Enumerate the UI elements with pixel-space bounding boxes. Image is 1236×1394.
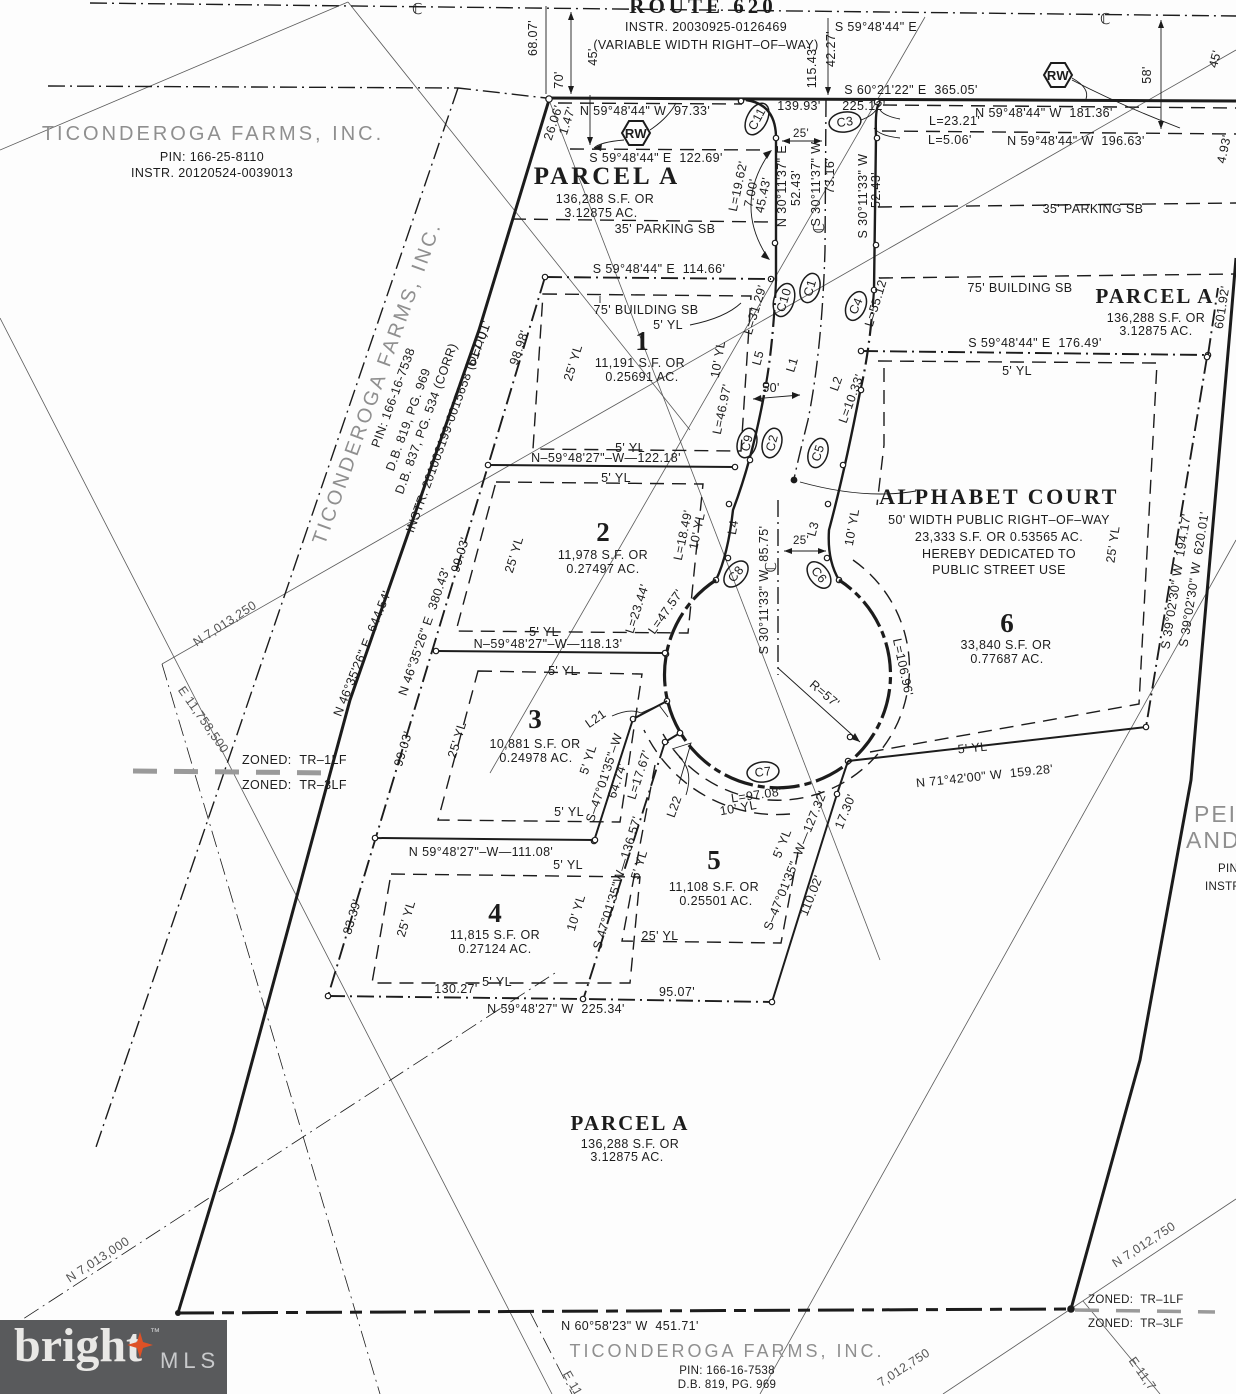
- svg-text:73.16': 73.16': [823, 158, 837, 194]
- svg-text:N 7,013,250: N 7,013,250: [191, 598, 259, 649]
- svg-text:0.25501 AC.: 0.25501 AC.: [679, 894, 752, 908]
- svg-text:11,815 S.F. OR: 11,815 S.F. OR: [450, 928, 540, 942]
- svg-text:L=23.21': L=23.21': [929, 114, 980, 128]
- svg-text:S 30°11'33" W: S 30°11'33" W: [856, 154, 870, 239]
- svg-text:0.77687 AC.: 0.77687 AC.: [970, 652, 1043, 666]
- svg-text:25': 25': [793, 128, 809, 140]
- svg-text:45': 45': [586, 48, 600, 66]
- svg-text:25' YL: 25' YL: [502, 535, 526, 575]
- svg-text:ℂ: ℂ: [412, 1, 423, 18]
- svg-text:ZONED: TR–1LF: ZONED: TR–1LF: [1088, 1294, 1184, 1306]
- svg-text:ROUTE 620: ROUTE 620: [629, 0, 776, 18]
- svg-text:N 71°42'00" W 159.28': N 71°42'00" W 159.28': [915, 762, 1053, 790]
- svg-text:0.25691 AC.: 0.25691 AC.: [605, 370, 678, 384]
- svg-text:C6: C6: [808, 564, 829, 586]
- svg-text:C7: C7: [754, 764, 772, 780]
- svg-text:N 7,013,000: N 7,013,000: [64, 1234, 132, 1285]
- svg-text:68.07': 68.07': [526, 20, 540, 56]
- svg-text:75' BUILDING SB: 75' BUILDING SB: [968, 281, 1073, 295]
- svg-text:10' YL: 10' YL: [564, 893, 588, 933]
- svg-text:3: 3: [528, 704, 542, 734]
- svg-text:10' YL: 10' YL: [842, 508, 862, 547]
- svg-text:ZONED: TR–3LF: ZONED: TR–3LF: [1088, 1318, 1184, 1330]
- svg-text:ℂ: ℂ: [811, 223, 828, 234]
- svg-text:PARCEL A: PARCEL A: [534, 163, 680, 190]
- svg-text:2: 2: [596, 517, 610, 547]
- svg-text:5: 5: [707, 845, 721, 875]
- svg-text:225.12': 225.12': [842, 99, 885, 113]
- svg-text:25' YL: 25' YL: [445, 720, 469, 760]
- svg-text:L=106.96': L=106.96': [890, 637, 916, 697]
- svg-text:L=47.57': L=47.57': [645, 587, 686, 637]
- svg-text:S 59°48'44" E 114.66': S 59°48'44" E 114.66': [593, 262, 726, 276]
- svg-text:115.43': 115.43': [805, 46, 819, 89]
- svg-text:D.B. 819, PG. 969: D.B. 819, PG. 969: [678, 1379, 776, 1391]
- svg-text:N 30°11'37" E: N 30°11'37" E: [775, 145, 789, 227]
- svg-text:PARCEL A: PARCEL A: [571, 1111, 690, 1135]
- svg-text:99.03': 99.03': [391, 730, 415, 769]
- svg-text:L=5.06': L=5.06': [928, 133, 972, 147]
- svg-text:23,333 S.F. OR 0.53565 AC.: 23,333 S.F. OR 0.53565 AC.: [915, 530, 1083, 544]
- svg-text:L1: L1: [783, 356, 801, 374]
- svg-text:HEREBY DEDICATED TO: HEREBY DEDICATED TO: [922, 547, 1076, 561]
- svg-text:4: 4: [488, 898, 502, 928]
- svg-text:N 60°58'23" W 451.71': N 60°58'23" W 451.71': [561, 1319, 699, 1333]
- svg-text:N 59°48'44" W 181.36': N 59°48'44" W 181.36': [975, 106, 1113, 120]
- svg-text:110.02': 110.02': [797, 873, 826, 918]
- svg-text:11,191 S.F. OR: 11,191 S.F. OR: [595, 356, 685, 370]
- svg-text:98.98': 98.98': [507, 328, 532, 367]
- svg-text:L2: L2: [827, 374, 845, 393]
- svg-text:139.93': 139.93': [777, 99, 820, 113]
- svg-text:10,881 S.F. OR: 10,881 S.F. OR: [489, 737, 580, 751]
- svg-text:3.12875 AC.: 3.12875 AC.: [1119, 324, 1192, 338]
- svg-text:5' YL: 5' YL: [554, 805, 584, 819]
- svg-text:S 60°21'22" E 365.05': S 60°21'22" E 365.05': [844, 83, 978, 97]
- svg-text:25' YL: 25' YL: [394, 899, 418, 939]
- svg-text:99.03': 99.03': [448, 536, 472, 575]
- svg-text:N 46°35'26" E 644.54': N 46°35'26" E 644.54': [331, 589, 394, 719]
- svg-text:35' PARKING SB: 35' PARKING SB: [615, 222, 716, 236]
- svg-text:R=57': R=57': [807, 677, 843, 710]
- svg-text:N 59°48'27" W 225.34': N 59°48'27" W 225.34': [487, 1002, 625, 1016]
- svg-text:S 59°48'44" E: S 59°48'44" E: [835, 20, 917, 34]
- svg-text:136,288 S.F. OR: 136,288 S.F. OR: [1107, 311, 1205, 325]
- svg-text:4.93': 4.93': [1214, 134, 1234, 165]
- svg-text:617.01': 617.01': [463, 318, 495, 369]
- svg-text:83.39': 83.39': [340, 898, 364, 937]
- svg-text:S 59°48'44" E 176.49': S 59°48'44" E 176.49': [968, 336, 1102, 350]
- svg-text:42.27': 42.27': [824, 31, 838, 67]
- svg-text:C1: C1: [801, 278, 819, 298]
- svg-text:L=46.97': L=46.97': [710, 383, 734, 436]
- svg-text:L21: L21: [583, 707, 609, 731]
- svg-text:ℂ: ℂ: [1100, 11, 1111, 28]
- svg-text:5' YL: 5' YL: [1002, 364, 1032, 378]
- svg-text:N 59°48'27"–W—111.08': N 59°48'27"–W—111.08': [409, 845, 553, 859]
- svg-text:L=31.29': L=31.29': [741, 283, 769, 336]
- svg-text:AND S: AND S: [1186, 827, 1236, 853]
- svg-text:N–59°48'27"–W—122.18': N–59°48'27"–W—122.18': [531, 451, 681, 465]
- svg-text:95.07': 95.07': [659, 985, 695, 999]
- svg-text:5' YL: 5' YL: [553, 858, 583, 872]
- svg-text:52.43': 52.43': [869, 172, 883, 208]
- svg-text:3.12875 AC.: 3.12875 AC.: [590, 1150, 663, 1164]
- svg-text:TICONDEROGA FARMS, INC.: TICONDEROGA FARMS, INC.: [42, 123, 384, 145]
- svg-text:33,840 S.F. OR: 33,840 S.F. OR: [960, 638, 1051, 652]
- svg-text:136,288 S.F. OR: 136,288 S.F. OR: [581, 1137, 679, 1151]
- svg-text:E 11,7: E 11,7: [1126, 1354, 1159, 1393]
- svg-text:5' YL: 5' YL: [957, 739, 988, 756]
- svg-text:PARCEL A: PARCEL A: [1096, 284, 1215, 308]
- svg-text:ℂ: ℂ: [763, 562, 780, 573]
- svg-text:L5: L5: [749, 349, 766, 367]
- svg-text:S 30°11'33" W 85.75': S 30°11'33" W 85.75': [757, 526, 771, 655]
- svg-text:11,978 S.F. OR: 11,978 S.F. OR: [558, 548, 648, 562]
- svg-text:C2: C2: [763, 433, 781, 453]
- svg-text:25': 25': [793, 535, 809, 547]
- svg-text:70': 70': [552, 71, 566, 89]
- svg-text:3.12875 AC.: 3.12875 AC.: [564, 206, 637, 220]
- svg-text:136,288 S.F. OR: 136,288 S.F. OR: [556, 192, 654, 206]
- svg-text:INSTR. 20120524-0039013: INSTR. 20120524-0039013: [131, 166, 293, 180]
- svg-text:N 59°48'44" W 97.33': N 59°48'44" W 97.33': [580, 104, 710, 118]
- svg-text:ZONED: TR–1LF: ZONED: TR–1LF: [242, 753, 347, 767]
- svg-text:PIN: 166-25-8110: PIN: 166-25-8110: [160, 150, 264, 164]
- svg-text:E 11,: E 11,: [560, 1368, 587, 1394]
- svg-text:S–47°01'35"–W—127.32': S–47°01'35"–W—127.32': [761, 789, 830, 932]
- svg-text:PEIT: PEIT: [1194, 801, 1236, 827]
- svg-text:1: 1: [635, 326, 649, 356]
- svg-text:35' PARKING SB: 35' PARKING SB: [1043, 202, 1144, 216]
- svg-text:11,108 S.F. OR: 11,108 S.F. OR: [669, 880, 759, 894]
- svg-text:TICONDEROGA FARMS, INC.: TICONDEROGA FARMS, INC.: [569, 1341, 884, 1361]
- svg-text:E 11,758,500: E 11,758,500: [175, 684, 231, 756]
- svg-text:C3: C3: [836, 114, 855, 130]
- svg-text:N–59°48'27"–W—118.13': N–59°48'27"–W—118.13': [474, 637, 623, 651]
- svg-text:25' YL: 25' YL: [641, 929, 678, 943]
- svg-text:5' YL: 5' YL: [653, 318, 683, 332]
- svg-text:INSTR. 20030925-0126469: INSTR. 20030925-0126469: [625, 20, 787, 34]
- svg-text:50': 50': [762, 381, 780, 395]
- svg-text:PIN: PIN: [1218, 863, 1236, 875]
- svg-text:ALPHABET COURT: ALPHABET COURT: [879, 484, 1119, 509]
- svg-text:45': 45': [1206, 49, 1224, 70]
- svg-text:5' YL: 5' YL: [482, 975, 512, 989]
- svg-text:25' YL: 25' YL: [1104, 525, 1123, 564]
- svg-text:S 30°11'37" W: S 30°11'37" W: [809, 142, 823, 227]
- svg-text:ZONED: TR–3LF: ZONED: TR–3LF: [242, 778, 347, 792]
- svg-text:L22: L22: [664, 794, 685, 820]
- svg-text:52.43': 52.43': [789, 170, 803, 206]
- svg-text:6: 6: [1000, 608, 1014, 638]
- svg-text:10' YL: 10' YL: [719, 798, 758, 818]
- svg-text:5' YL: 5' YL: [601, 471, 631, 485]
- svg-text:0.27497 AC.: 0.27497 AC.: [566, 562, 639, 576]
- svg-text:S 47°01'35"W—136.57': S 47°01'35"W—136.57': [590, 815, 644, 951]
- svg-text:50' WIDTH PUBLIC RIGHT–OF–WAY: 50' WIDTH PUBLIC RIGHT–OF–WAY: [888, 513, 1110, 527]
- svg-text:58': 58': [1140, 66, 1154, 84]
- svg-text:RW: RW: [1047, 68, 1070, 83]
- svg-text:(VARIABLE WIDTH RIGHT–OF–WAY): (VARIABLE WIDTH RIGHT–OF–WAY): [593, 38, 818, 52]
- svg-text:PIN: 166-16-7538: PIN: 166-16-7538: [679, 1365, 775, 1377]
- svg-text:N 59°48'44" W 196.63': N 59°48'44" W 196.63': [1007, 134, 1145, 148]
- svg-text:0.24978 AC.: 0.24978 AC.: [499, 751, 572, 765]
- svg-text:75' BUILDING SB: 75' BUILDING SB: [594, 303, 699, 317]
- svg-text:RW: RW: [625, 126, 648, 141]
- svg-text:10' YL: 10' YL: [708, 340, 728, 379]
- svg-text:130.27': 130.27': [434, 982, 477, 996]
- svg-text:PUBLIC STREET USE: PUBLIC STREET USE: [932, 563, 1066, 577]
- svg-text:L4: L4: [725, 519, 741, 536]
- svg-text:5' YL: 5' YL: [548, 664, 578, 678]
- svg-text:25' YL: 25' YL: [561, 343, 585, 383]
- svg-text:INSTR.: INSTR.: [1205, 881, 1236, 893]
- svg-text:0.27124 AC.: 0.27124 AC.: [458, 942, 531, 956]
